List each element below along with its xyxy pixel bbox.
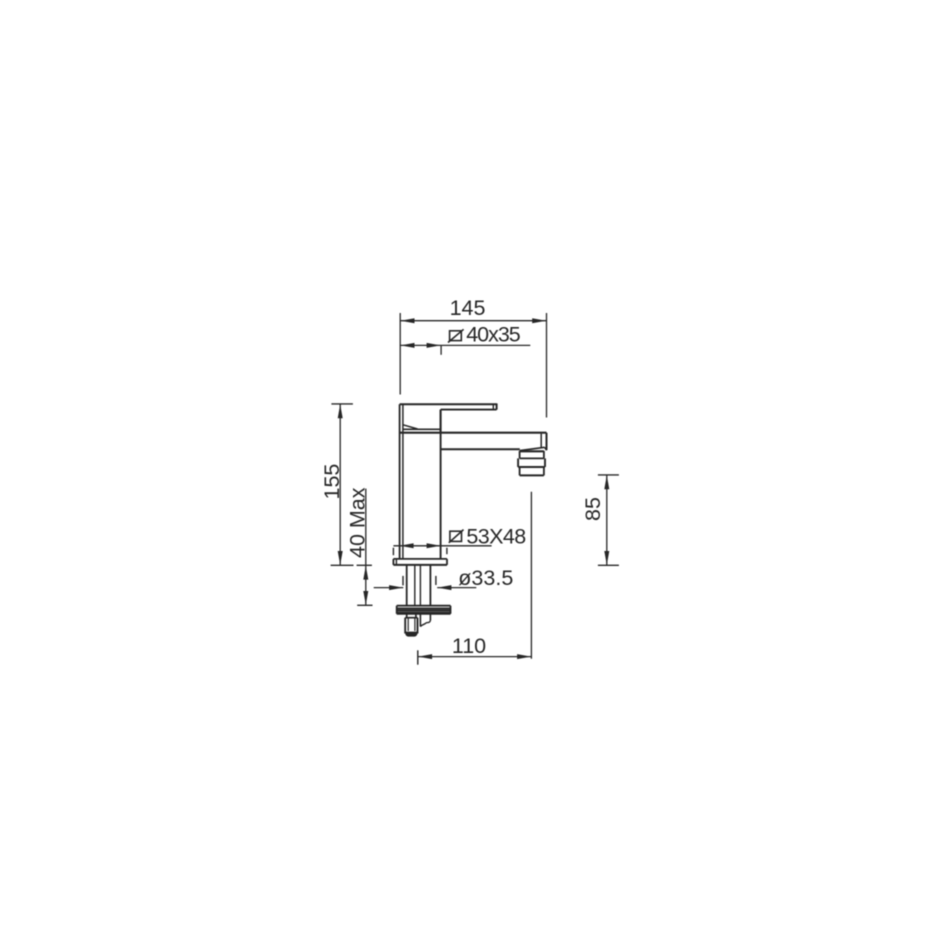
svg-text:40x35: 40x35 xyxy=(466,323,521,347)
svg-text:110: 110 xyxy=(452,634,486,658)
svg-text:ø33.5: ø33.5 xyxy=(458,566,513,590)
svg-text:40 Max: 40 Max xyxy=(346,487,370,558)
svg-text:85: 85 xyxy=(581,497,605,521)
svg-text:53X48: 53X48 xyxy=(466,525,526,549)
svg-text:155: 155 xyxy=(320,464,344,500)
svg-text:145: 145 xyxy=(450,296,486,320)
